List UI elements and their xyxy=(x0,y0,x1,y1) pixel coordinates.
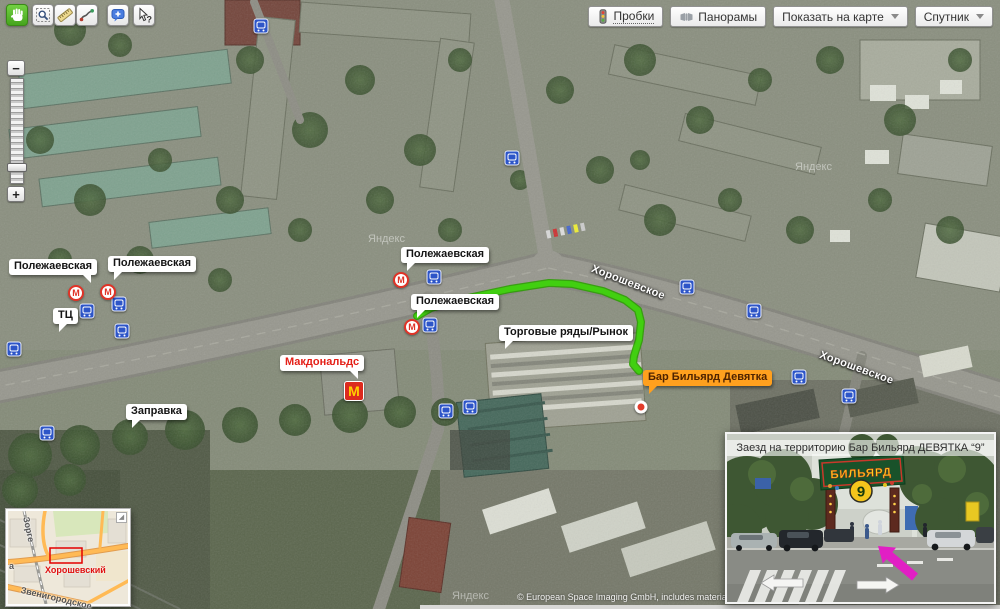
gas-station-label[interactable]: Заправка xyxy=(126,404,187,420)
zoom-select-tool-button[interactable] xyxy=(32,4,54,26)
zoom-slider-handle[interactable] xyxy=(7,163,27,172)
transport-stop-marker[interactable] xyxy=(842,389,857,404)
route-tool-button[interactable] xyxy=(76,4,98,26)
zoom-out-button[interactable]: − xyxy=(7,60,25,76)
yandex-maps-app: ПолежаевскаяПолежаевскаяПолежаевскаяПоле… xyxy=(0,0,1000,609)
measure-tool-button[interactable] xyxy=(54,4,76,26)
market-rows-label[interactable]: Торговые ряды/Рынок xyxy=(499,325,633,341)
panoramas-button[interactable]: Панорамы xyxy=(670,6,766,27)
transport-stop-marker[interactable] xyxy=(505,151,520,166)
minimap-collapse-button[interactable]: ◢ xyxy=(116,512,127,523)
photo-caption: Заезд на территорию Бар Бильярд ДЕВЯТКА … xyxy=(727,440,994,456)
help-cursor-icon: ? xyxy=(135,6,153,24)
street-label-khoroshevskoe-1: Хорошевское xyxy=(590,263,667,302)
traffic-button[interactable]: Пробки xyxy=(588,6,663,27)
bar-billiard-label[interactable]: Бар Бильярд Девятка xyxy=(643,370,772,386)
yandex-watermark: Яндекс xyxy=(795,161,832,173)
minimap-edge-label: а xyxy=(9,561,14,571)
show-on-map-button[interactable]: Показать на карте xyxy=(773,6,908,27)
transport-stop-marker[interactable] xyxy=(115,324,130,339)
transport-stop-marker[interactable] xyxy=(463,400,478,415)
show-on-map-label: Показать на карте xyxy=(782,10,884,24)
polezhaevskaya-label-2[interactable]: Полежаевская xyxy=(108,256,196,272)
map-controls-bar: Пробки Панорамы Показать на карте Спутни… xyxy=(588,6,993,27)
zoom-in-button[interactable]: + xyxy=(7,186,25,202)
street-photo: БИЛЬЯРД 9 xyxy=(727,434,994,602)
metro-station-marker[interactable]: М xyxy=(404,319,420,335)
transport-stop-marker[interactable] xyxy=(254,19,269,34)
transport-stop-marker[interactable] xyxy=(427,270,442,285)
transport-stop-marker[interactable] xyxy=(80,304,95,319)
street-label-khoroshevskoe-2: Хорошевское xyxy=(818,349,895,387)
metro-station-marker[interactable]: М xyxy=(393,272,409,288)
billiard-sign-number: 9 xyxy=(857,484,865,501)
whats-here-tool-button[interactable]: ? xyxy=(133,4,155,26)
transport-stop-marker[interactable] xyxy=(40,426,55,441)
hand-icon xyxy=(8,6,26,24)
transport-stop-marker[interactable] xyxy=(439,404,454,419)
minimap-district-label: Хорошевский xyxy=(45,565,106,575)
metro-station-marker[interactable]: М xyxy=(100,284,116,300)
polezhaevskaya-label-4[interactable]: Полежаевская xyxy=(411,294,499,310)
chevron-down-icon xyxy=(891,14,899,19)
yandex-watermark: Яндекс xyxy=(452,590,489,602)
zoom-control: − + xyxy=(7,60,27,202)
polezhaevskaya-label-1[interactable]: Полежаевская xyxy=(9,259,97,275)
transport-stop-marker[interactable] xyxy=(680,280,695,295)
traffic-light-icon xyxy=(597,9,609,24)
pan-tool-button[interactable] xyxy=(6,4,28,26)
transport-stop-marker[interactable] xyxy=(792,370,807,385)
mcdonalds-label[interactable]: Макдональдс xyxy=(280,355,364,371)
overview-minimap[interactable]: Зорге Хорошевский Звенигородское а ◢ xyxy=(6,509,130,606)
layer-switch-button[interactable]: Спутник xyxy=(915,6,993,27)
traffic-button-label: Пробки xyxy=(613,9,654,24)
ruler-icon xyxy=(56,6,74,24)
svg-text:?: ? xyxy=(147,15,153,25)
metro-station-marker[interactable]: М xyxy=(68,285,84,301)
comment-plus-icon xyxy=(109,6,127,24)
comment-tool-button[interactable] xyxy=(107,4,129,26)
layer-switch-label: Спутник xyxy=(924,10,969,24)
polezhaevskaya-label-3[interactable]: Полежаевская xyxy=(401,247,489,263)
mcdonalds-marker[interactable]: M xyxy=(344,381,364,401)
destination-dot-marker[interactable] xyxy=(635,401,648,414)
transport-stop-marker[interactable] xyxy=(747,304,762,319)
chevron-down-icon xyxy=(976,14,984,19)
panoramas-button-label: Панорамы xyxy=(698,10,757,24)
shopping-center-label[interactable]: ТЦ xyxy=(53,308,78,324)
yandex-watermark: Яндекс xyxy=(368,233,405,245)
transport-stop-marker[interactable] xyxy=(7,342,22,357)
route-icon xyxy=(78,6,96,24)
transport-stop-marker[interactable] xyxy=(112,297,127,312)
magnifier-select-icon xyxy=(34,6,52,24)
transport-stop-marker[interactable] xyxy=(423,318,438,333)
entrance-photo-inset[interactable]: Заезд на территорию Бар Бильярд ДЕВЯТКА … xyxy=(725,432,996,604)
panoramas-icon xyxy=(679,10,694,24)
zoom-slider-track[interactable] xyxy=(10,78,24,184)
